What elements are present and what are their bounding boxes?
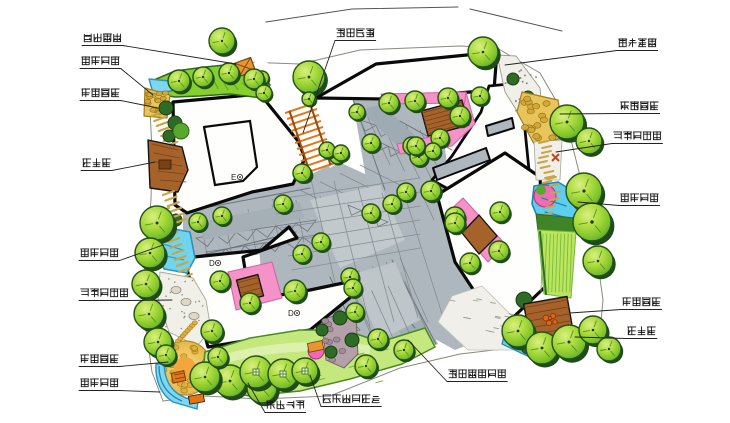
svg-text:D: D	[209, 259, 215, 268]
svg-text:D: D	[288, 309, 294, 318]
svg-text:E: E	[231, 173, 236, 182]
